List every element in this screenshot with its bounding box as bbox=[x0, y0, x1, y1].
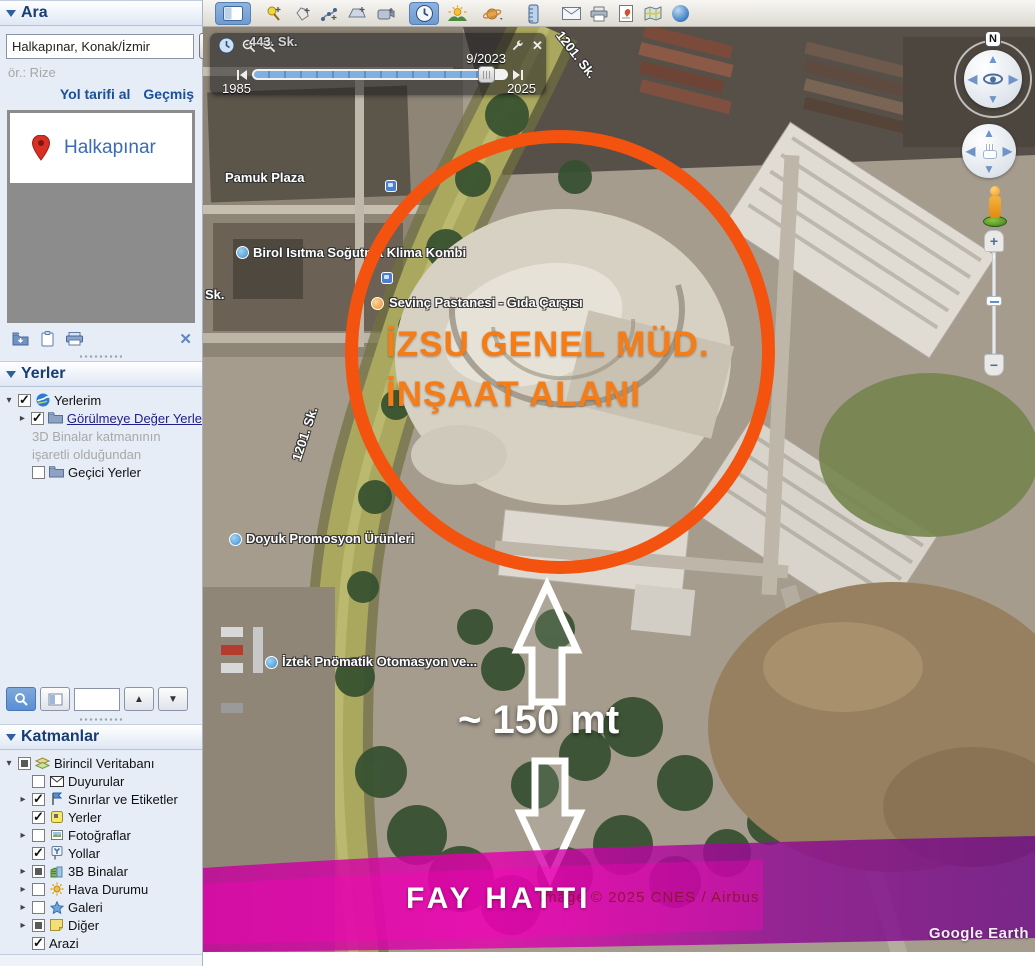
earth-sphere-icon[interactable] bbox=[668, 2, 692, 25]
checkbox[interactable] bbox=[32, 937, 45, 950]
add-image-overlay-icon[interactable] bbox=[343, 2, 371, 25]
checkbox[interactable] bbox=[32, 793, 45, 806]
search-input[interactable] bbox=[6, 34, 194, 59]
look-up-icon[interactable]: ▲ bbox=[987, 52, 999, 66]
tree-item-label[interactable]: Yollar bbox=[68, 846, 100, 861]
email-icon[interactable] bbox=[558, 2, 584, 25]
search-results-box: Halkapınar bbox=[7, 110, 195, 323]
tree-item-gallery[interactable]: Galeri bbox=[4, 898, 202, 916]
layers-filter-input[interactable] bbox=[74, 688, 120, 711]
expander-icon[interactable] bbox=[18, 413, 27, 424]
tree-note-line1: 3D Binalar katmanının bbox=[4, 427, 202, 445]
expander-icon[interactable] bbox=[18, 866, 28, 877]
tree-item-primary-db[interactable]: Birincil Veritabanı bbox=[4, 754, 202, 772]
wrench-icon[interactable] bbox=[510, 39, 524, 53]
up-arrow-icon: ▲ bbox=[134, 694, 144, 705]
bottom-strip bbox=[203, 952, 1035, 966]
search-hint: ör.: Rize bbox=[0, 61, 202, 80]
layers-panel-header[interactable]: Katmanlar bbox=[0, 724, 202, 750]
zoom-in-button[interactable]: + bbox=[984, 230, 1004, 252]
panel-resize-handle[interactable] bbox=[80, 716, 122, 723]
planets-icon[interactable] bbox=[480, 2, 508, 25]
tree-item-label[interactable]: Görülmeye Değer Yerle bbox=[67, 411, 202, 426]
sidebar-toggle-icon[interactable] bbox=[215, 2, 251, 25]
folder-icon bbox=[49, 465, 64, 479]
close-icon[interactable]: ✕ bbox=[179, 330, 192, 348]
look-joystick[interactable]: ▲▼ ◀▶ bbox=[964, 50, 1022, 108]
checkbox[interactable] bbox=[18, 394, 31, 407]
move-up-button[interactable]: ▲ bbox=[124, 687, 154, 711]
weather-icon bbox=[49, 882, 64, 896]
compass-north-label[interactable]: N bbox=[985, 31, 1001, 47]
tree-item-terrain[interactable]: Arazi bbox=[4, 934, 202, 952]
look-left-icon[interactable]: ◀ bbox=[968, 72, 977, 86]
sidebar: Ara Ara ör.: Rize Yol tarifi al Geçmiş H… bbox=[0, 0, 203, 966]
panel-resize-handle[interactable] bbox=[80, 353, 122, 360]
tree-item-roads[interactable]: Yollar bbox=[4, 844, 202, 862]
time-slider-start-year: 1985 bbox=[222, 81, 251, 96]
save-image-icon[interactable] bbox=[614, 2, 638, 25]
add-placemark-icon[interactable] bbox=[260, 2, 288, 25]
sunlight-icon[interactable] bbox=[442, 2, 472, 25]
checkbox[interactable] bbox=[32, 883, 45, 896]
expander-icon[interactable] bbox=[18, 794, 28, 805]
ruler-icon[interactable] bbox=[520, 2, 546, 25]
time-slider-track[interactable] bbox=[252, 69, 508, 80]
tree-item-label[interactable]: Fotoğraflar bbox=[68, 828, 131, 843]
flag-icon bbox=[49, 792, 64, 806]
collapse-triangle-icon[interactable] bbox=[6, 734, 16, 741]
tree-item-label[interactable]: Arazi bbox=[49, 936, 79, 951]
tree-item-yerlerim[interactable]: Yerlerim bbox=[4, 391, 202, 409]
clipboard-icon[interactable] bbox=[41, 331, 54, 347]
expander-icon[interactable] bbox=[4, 395, 14, 406]
expander-icon[interactable] bbox=[18, 830, 28, 841]
tree-item-3d-buildings[interactable]: 3B Binalar bbox=[4, 862, 202, 880]
print-icon[interactable] bbox=[586, 2, 612, 25]
street-label: 443. Sk. bbox=[249, 34, 297, 49]
buildings-icon bbox=[49, 864, 64, 878]
expander-icon[interactable] bbox=[18, 902, 28, 913]
checkbox[interactable] bbox=[32, 811, 45, 824]
printer-icon[interactable] bbox=[66, 332, 83, 346]
place-pin-icon bbox=[32, 135, 50, 161]
zoom-slider[interactable]: + − bbox=[984, 230, 1004, 376]
fault-line-annotation: FAY HATTI bbox=[406, 882, 591, 916]
checkbox[interactable] bbox=[32, 919, 45, 932]
google-earth-watermark: Google Earth bbox=[929, 925, 1029, 942]
google-earth-window: Ara Ara ör.: Rize Yol tarifi al Geçmiş H… bbox=[0, 0, 1035, 966]
down-arrow-icon: ▼ bbox=[168, 694, 178, 705]
layers-panel-title: Katmanlar bbox=[21, 728, 99, 746]
layers-toolbar: ▲ ▼ bbox=[0, 683, 202, 715]
search-layers-button[interactable] bbox=[6, 687, 36, 711]
tree-item-temporary-places[interactable]: Geçici Yerler bbox=[4, 463, 202, 481]
tree-item-label[interactable]: Geçici Yerler bbox=[68, 465, 141, 480]
record-tour-icon[interactable] bbox=[372, 2, 400, 25]
sidebar-bottom-bar bbox=[0, 954, 202, 966]
roads-icon bbox=[49, 846, 64, 860]
tree-item-featured-places[interactable]: Görülmeye Değer Yerle bbox=[4, 409, 202, 427]
checkbox[interactable] bbox=[32, 829, 45, 842]
next-frame-icon[interactable] bbox=[512, 69, 524, 81]
tree-item-places-layer[interactable]: Yerler bbox=[4, 808, 202, 826]
layers-icon bbox=[35, 756, 50, 770]
search-result-item[interactable]: Halkapınar bbox=[10, 113, 192, 183]
profile-button[interactable] bbox=[40, 687, 70, 711]
move-up-icon[interactable]: ▲ bbox=[983, 126, 995, 140]
photo-icon bbox=[49, 828, 64, 842]
checkbox[interactable] bbox=[32, 466, 45, 479]
tree-item-label[interactable]: Birincil Veritabanı bbox=[54, 756, 154, 771]
google-earth-globe-icon bbox=[35, 393, 50, 407]
layers-tree: Birincil Veritabanı Duyurular Sınırlar v… bbox=[0, 750, 202, 954]
expander-icon[interactable] bbox=[18, 884, 28, 895]
clock-icon bbox=[218, 37, 235, 54]
place-icon bbox=[49, 810, 64, 824]
tree-item-label[interactable]: Yerlerim bbox=[54, 393, 101, 408]
checkbox[interactable] bbox=[32, 775, 45, 788]
time-slider-current-date: 9/2023 bbox=[466, 51, 506, 66]
tree-item-label[interactable]: Sınırlar ve Etiketler bbox=[68, 792, 178, 807]
search-panel-header[interactable]: Ara bbox=[0, 0, 202, 26]
folder-add-icon[interactable] bbox=[12, 332, 29, 346]
tree-item-label[interactable]: Hava Durumu bbox=[68, 882, 148, 897]
close-icon[interactable]: ✕ bbox=[532, 38, 543, 54]
gallery-icon bbox=[49, 900, 64, 914]
tree-item-more[interactable]: Diğer bbox=[4, 916, 202, 934]
eye-icon bbox=[983, 74, 1003, 85]
zoom-out-button[interactable]: − bbox=[984, 354, 1004, 376]
tree-item-label[interactable]: Galeri bbox=[68, 900, 103, 915]
places-panel-title: Yerler bbox=[21, 365, 65, 383]
hand-icon bbox=[982, 144, 996, 158]
move-joystick[interactable]: ▲▼ ◀▶ bbox=[962, 124, 1016, 178]
tree-item-photos[interactable]: Fotoğraflar bbox=[4, 826, 202, 844]
tree-item-label[interactable]: Diğer bbox=[68, 918, 99, 933]
places-panel-header[interactable]: Yerler bbox=[0, 361, 202, 387]
checkbox[interactable] bbox=[18, 757, 31, 770]
folder-icon bbox=[48, 411, 63, 425]
move-down-button[interactable]: ▼ bbox=[158, 687, 188, 711]
checkbox[interactable] bbox=[31, 412, 44, 425]
map-viewport[interactable]: 443. Sk. Pamuk Plaza Birol Isıtma Soğutm… bbox=[203, 0, 1035, 966]
map-toolbar bbox=[203, 0, 1035, 27]
collapse-triangle-icon[interactable] bbox=[6, 371, 16, 378]
prev-frame-icon[interactable] bbox=[236, 69, 248, 81]
tree-item-label[interactable]: 3B Binalar bbox=[68, 864, 128, 879]
collapse-triangle-icon[interactable] bbox=[6, 10, 16, 17]
look-right-icon[interactable]: ▶ bbox=[1009, 72, 1018, 86]
tree-note-line2: işaretli olduğundan bbox=[4, 445, 202, 463]
tree-item-weather[interactable]: Hava Durumu bbox=[4, 880, 202, 898]
expander-icon[interactable] bbox=[18, 920, 28, 931]
fault-line-band bbox=[203, 0, 1035, 966]
search-panel-title: Ara bbox=[21, 4, 48, 22]
tree-item-label[interactable]: Duyurular bbox=[68, 774, 124, 789]
add-polygon-icon[interactable] bbox=[289, 2, 315, 25]
view-in-maps-icon[interactable] bbox=[640, 2, 666, 25]
move-down-icon[interactable]: ▼ bbox=[983, 162, 995, 176]
places-tree: Yerlerim Görülmeye Değer Yerle 3D Binala… bbox=[0, 387, 202, 483]
look-down-icon[interactable]: ▼ bbox=[987, 92, 999, 106]
time-slider-handle[interactable] bbox=[478, 66, 495, 83]
checkbox[interactable] bbox=[32, 847, 45, 860]
checkbox[interactable] bbox=[32, 865, 45, 878]
mail-icon bbox=[49, 774, 64, 788]
add-path-icon[interactable] bbox=[316, 2, 342, 25]
search-result-label[interactable]: Halkapınar bbox=[64, 137, 156, 159]
time-slider-end-year: 2025 bbox=[507, 81, 536, 96]
move-right-icon[interactable]: ▶ bbox=[1003, 144, 1012, 158]
checkbox[interactable] bbox=[32, 901, 45, 914]
move-left-icon[interactable]: ◀ bbox=[966, 144, 975, 158]
misc-icon bbox=[49, 918, 64, 932]
tree-item-label[interactable]: Yerler bbox=[68, 810, 101, 825]
zoom-handle[interactable] bbox=[986, 296, 1002, 306]
history-link[interactable]: Geçmiş bbox=[143, 86, 194, 102]
expander-icon[interactable] bbox=[4, 758, 14, 769]
tree-item-borders-labels[interactable]: Sınırlar ve Etiketler bbox=[4, 790, 202, 808]
pegman-icon[interactable] bbox=[982, 186, 1008, 230]
historical-imagery-icon[interactable] bbox=[409, 2, 439, 25]
tree-item-announcements[interactable]: Duyurular bbox=[4, 772, 202, 790]
directions-link[interactable]: Yol tarifi al bbox=[60, 86, 131, 102]
